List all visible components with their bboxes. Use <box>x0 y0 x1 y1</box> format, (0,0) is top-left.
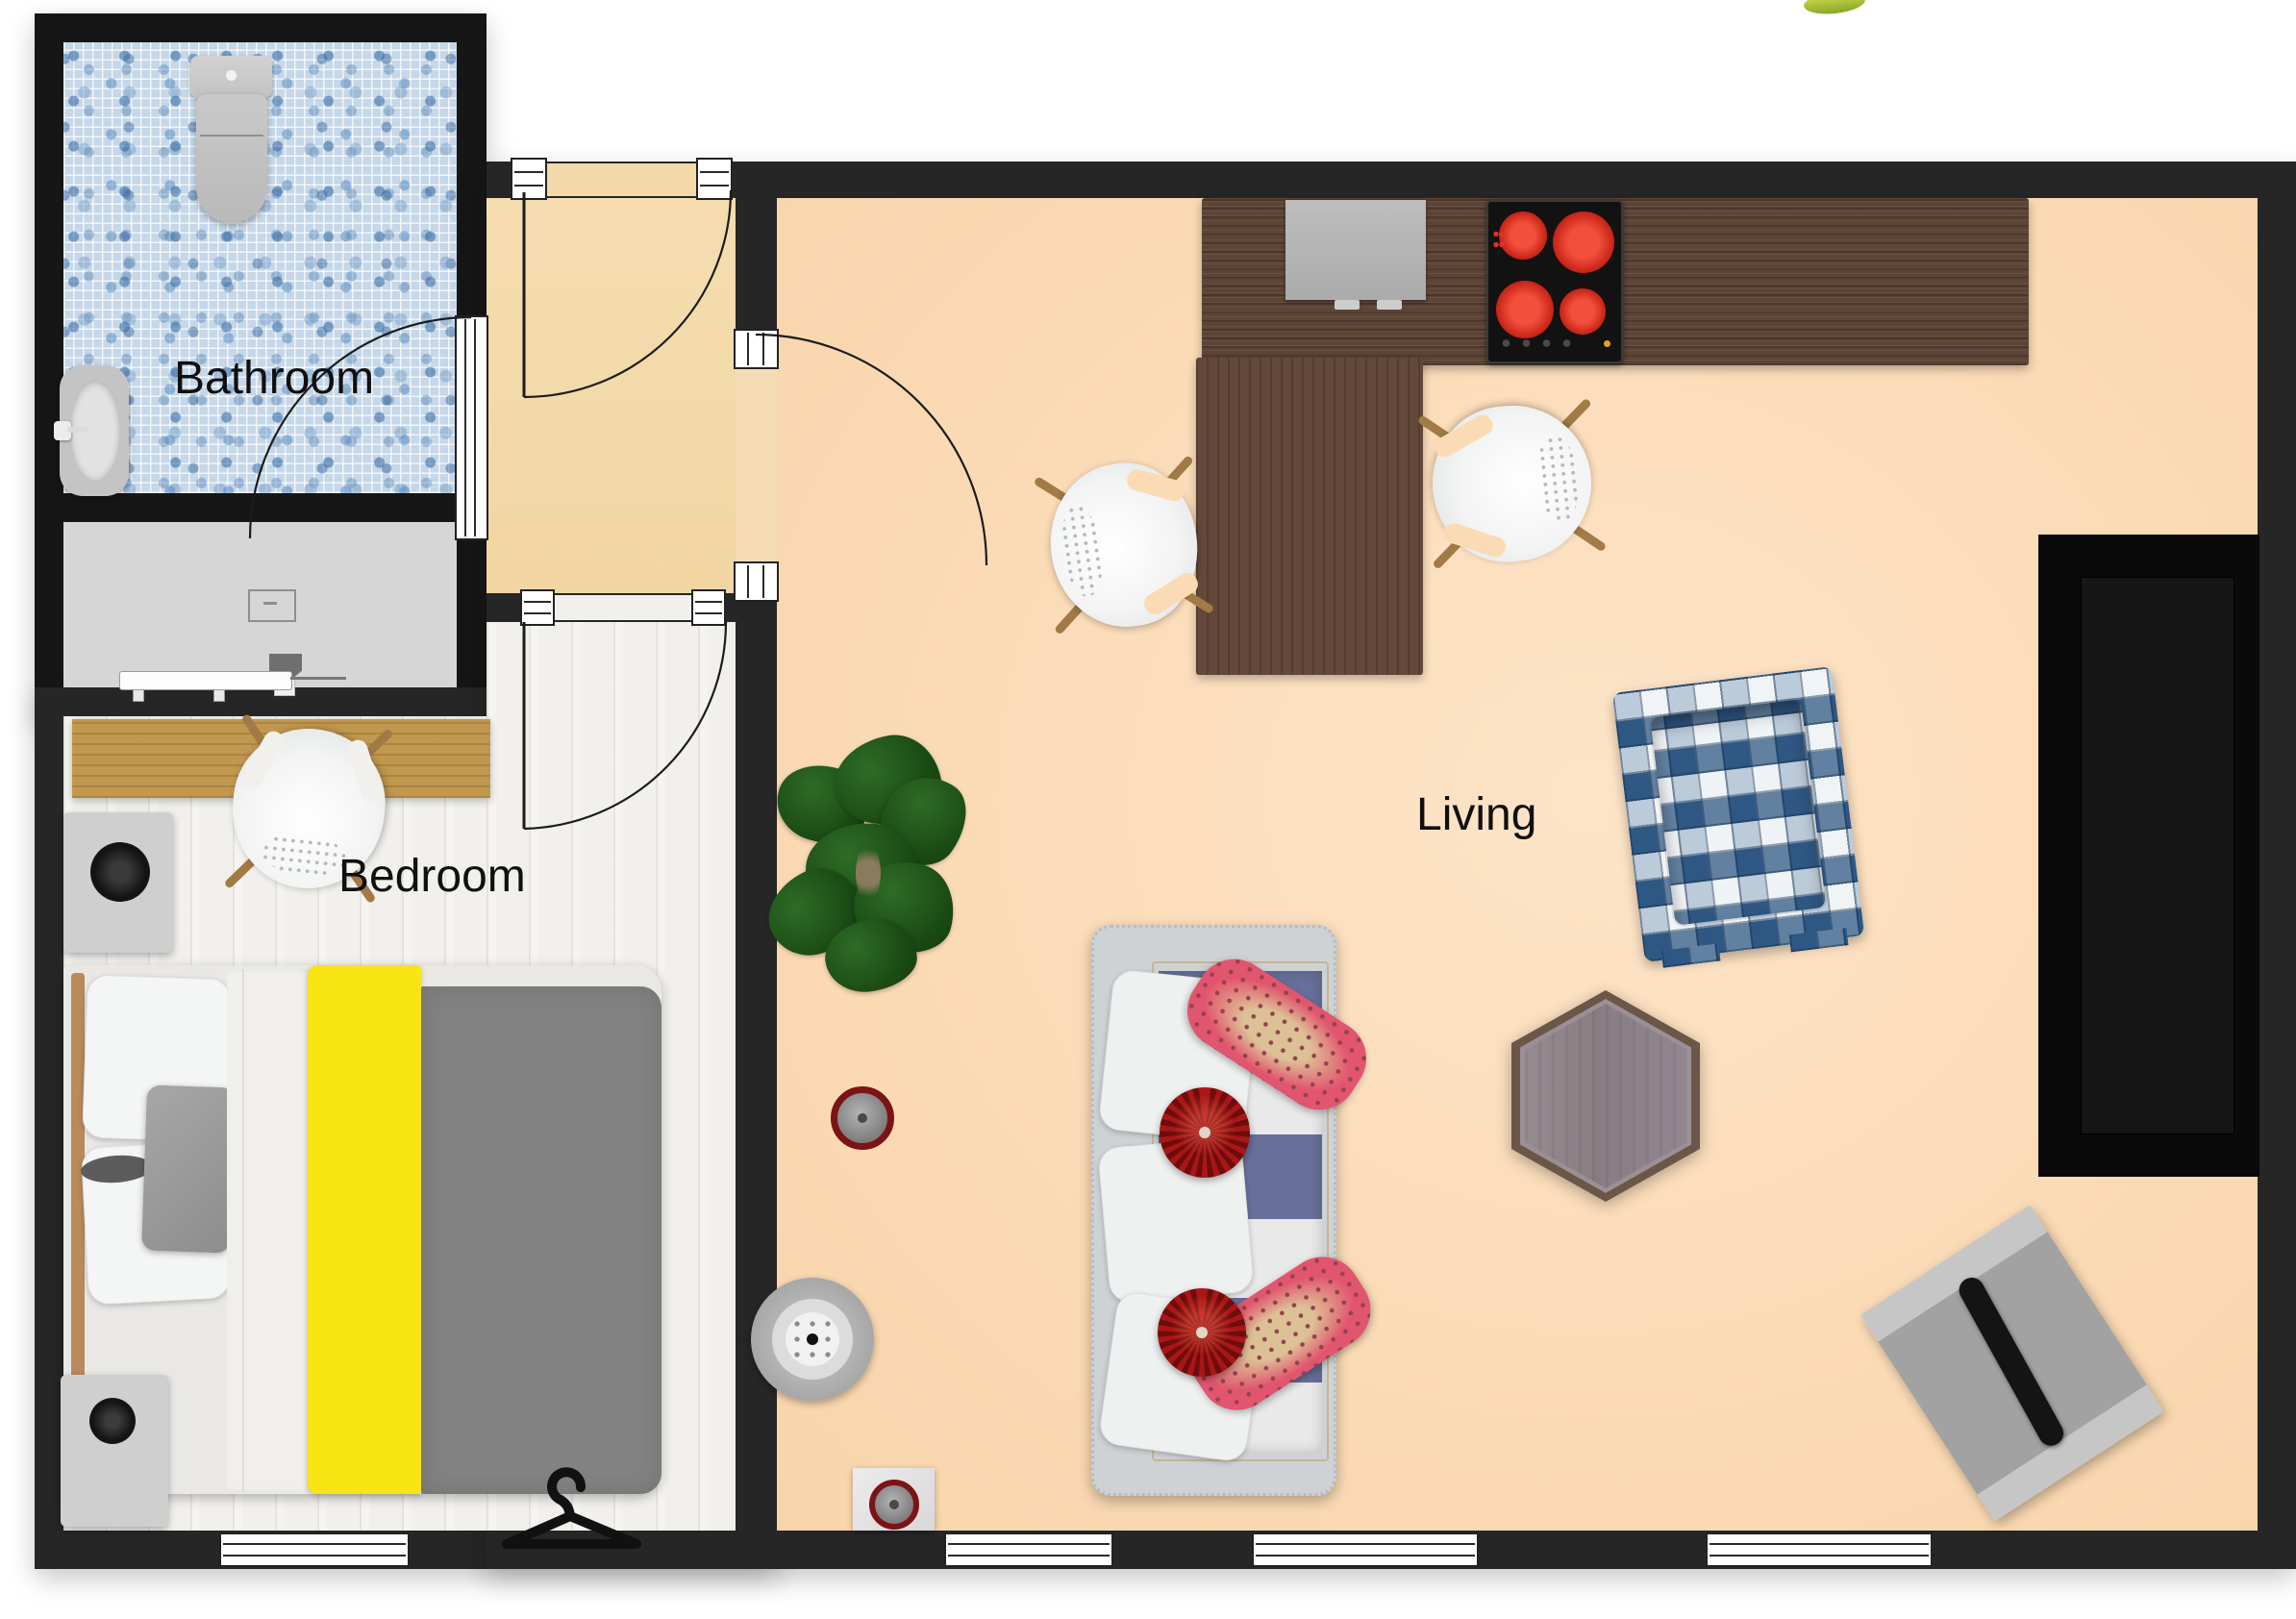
living-label: Living <box>1416 788 1536 841</box>
bedroom-label: Bedroom <box>338 850 526 903</box>
entrance-door-arc <box>524 190 731 397</box>
clothes-hanger-icon <box>507 1472 636 1544</box>
floor-plan: Bathroom Bedroom Living <box>0 0 2296 1619</box>
bathroom-label: Bathroom <box>174 352 374 405</box>
bedroom-door-arc <box>524 622 726 829</box>
bathroom-door-arc <box>250 317 471 538</box>
living-door-arc <box>756 335 986 565</box>
door-swing-arcs <box>0 0 2296 1619</box>
